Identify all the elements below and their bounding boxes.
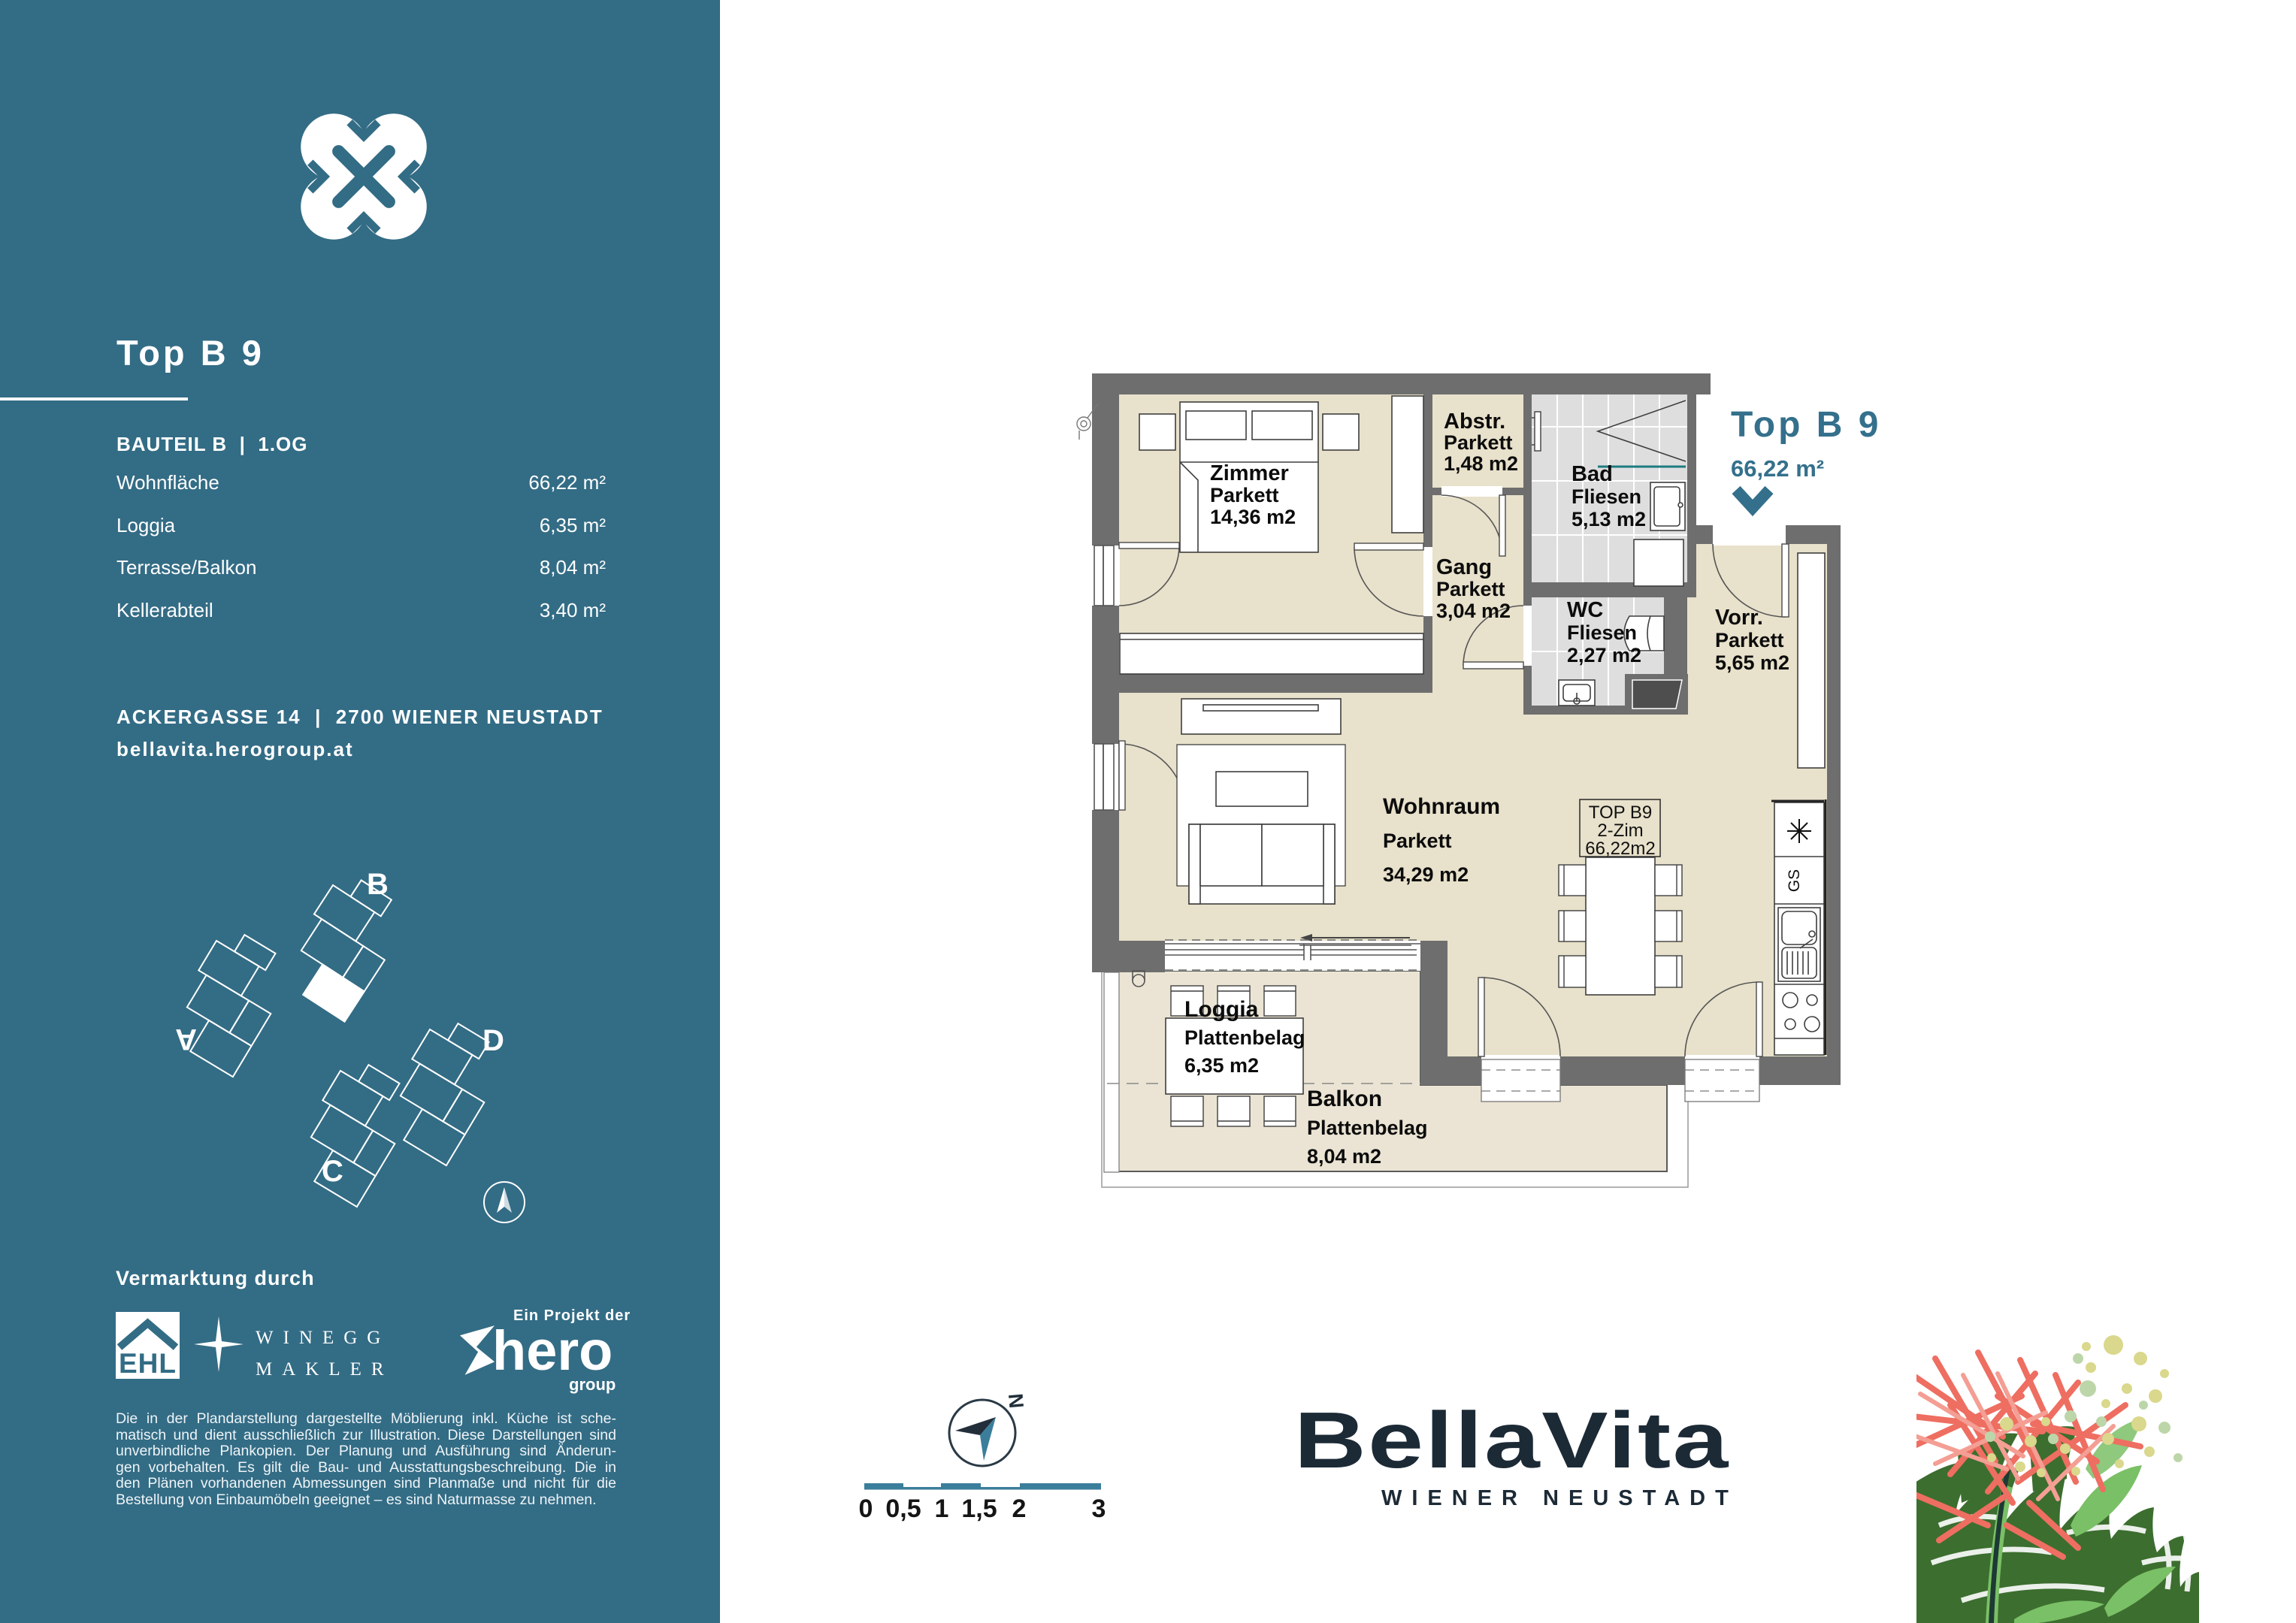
svg-text:Parkett: Parkett bbox=[1715, 629, 1784, 651]
svg-text:2,27 m2: 2,27 m2 bbox=[1567, 644, 1641, 666]
svg-text:1: 1 bbox=[935, 1495, 949, 1522]
svg-text:N: N bbox=[1004, 1392, 1028, 1409]
svg-text:0: 0 bbox=[859, 1495, 873, 1522]
svg-text:34,29 m2: 34,29 m2 bbox=[1383, 863, 1469, 886]
svg-text:C: C bbox=[322, 1155, 343, 1188]
svg-text:GS: GS bbox=[1786, 869, 1803, 892]
svg-text:EHL: EHL bbox=[119, 1348, 177, 1379]
svg-text:Gang: Gang bbox=[1436, 555, 1492, 579]
svg-text:1,5: 1,5 bbox=[961, 1495, 997, 1522]
svg-text:66,22m2: 66,22m2 bbox=[1585, 839, 1655, 859]
svg-text:D: D bbox=[482, 1024, 504, 1057]
svg-text:A: A bbox=[175, 1023, 197, 1056]
svg-text:Fliesen: Fliesen bbox=[1572, 485, 1641, 508]
svg-text:Loggia: Loggia bbox=[1184, 997, 1259, 1022]
svg-text:Zimmer: Zimmer bbox=[1210, 461, 1289, 485]
svg-text:5,13 m2: 5,13 m2 bbox=[1572, 508, 1646, 530]
svg-text:WC: WC bbox=[1567, 598, 1603, 622]
svg-text:1,48 m2: 1,48 m2 bbox=[1444, 452, 1518, 475]
svg-text:2-Zim: 2-Zim bbox=[1597, 821, 1643, 841]
svg-text:Parkett: Parkett bbox=[1436, 578, 1505, 600]
svg-text:Parkett: Parkett bbox=[1210, 484, 1279, 506]
svg-text:Bad: Bad bbox=[1572, 462, 1613, 486]
svg-text:Vorr.: Vorr. bbox=[1715, 606, 1763, 630]
svg-text:Fliesen: Fliesen bbox=[1567, 621, 1637, 644]
svg-text:Parkett: Parkett bbox=[1444, 431, 1513, 454]
svg-text:Balkon: Balkon bbox=[1307, 1087, 1382, 1111]
svg-text:Plattenbelag: Plattenbelag bbox=[1184, 1026, 1305, 1049]
svg-text:2: 2 bbox=[1012, 1495, 1027, 1522]
svg-text:Parkett: Parkett bbox=[1383, 830, 1452, 852]
svg-text:0,5: 0,5 bbox=[885, 1495, 921, 1522]
svg-text:8,04 m2: 8,04 m2 bbox=[1307, 1145, 1381, 1168]
svg-text:5,65 m2: 5,65 m2 bbox=[1715, 651, 1789, 674]
svg-text:Plattenbelag: Plattenbelag bbox=[1307, 1117, 1428, 1139]
svg-text:Top B 9: Top B 9 bbox=[1731, 405, 1881, 445]
svg-text:66,22 m²: 66,22 m² bbox=[1731, 455, 1824, 482]
svg-text:Wohnraum: Wohnraum bbox=[1383, 794, 1500, 819]
svg-text:6,35 m2: 6,35 m2 bbox=[1184, 1054, 1259, 1077]
svg-text:TOP B9: TOP B9 bbox=[1589, 802, 1653, 823]
svg-text:Abstr.: Abstr. bbox=[1444, 410, 1505, 434]
svg-text:14,36 m2: 14,36 m2 bbox=[1210, 506, 1296, 528]
svg-text:3: 3 bbox=[1092, 1495, 1106, 1522]
svg-text:B: B bbox=[367, 868, 389, 901]
svg-text:3,04 m2: 3,04 m2 bbox=[1436, 600, 1511, 622]
